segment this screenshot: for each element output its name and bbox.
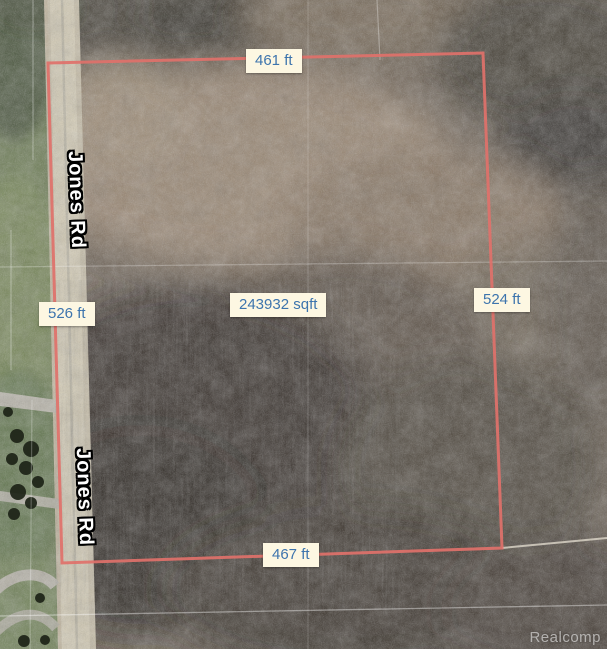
right-side-length-label: 524 ft: [474, 288, 530, 312]
road-name-label-upper: Jones Rd: [63, 151, 89, 250]
parcel-map-viewport[interactable]: 461 ft 526 ft 524 ft 467 ft 243932 sqft …: [0, 0, 607, 649]
top-side-length-label: 461 ft: [246, 49, 302, 73]
watermark-realcomp: Realcomp: [529, 629, 601, 646]
road-name-label-lower: Jones Rd: [71, 448, 97, 547]
left-side-length-label: 526 ft: [39, 302, 95, 326]
parcel-area-label: 243932 sqft: [230, 293, 326, 317]
bottom-side-length-label: 467 ft: [263, 543, 319, 567]
